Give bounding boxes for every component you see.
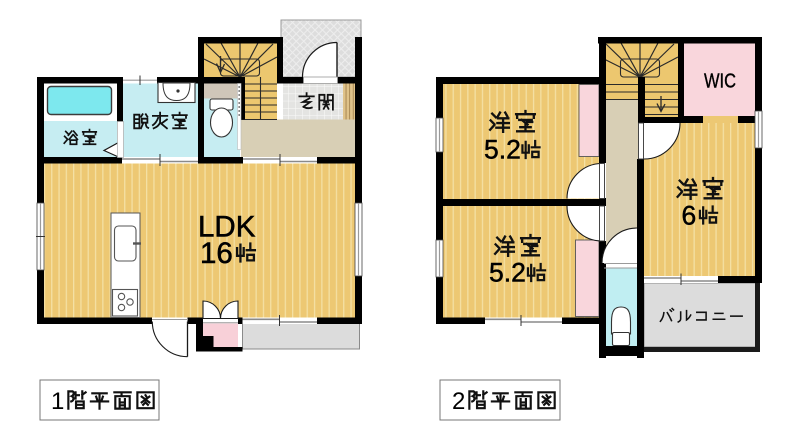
svg-text:5.2: 5.2 [489,258,526,288]
svg-text:1: 1 [51,388,64,415]
svg-text:2: 2 [452,388,465,415]
svg-text:WIC: WIC [704,70,736,93]
svg-text:6: 6 [682,201,697,231]
svg-text:16: 16 [200,237,233,270]
svg-text:5.2: 5.2 [484,135,521,165]
